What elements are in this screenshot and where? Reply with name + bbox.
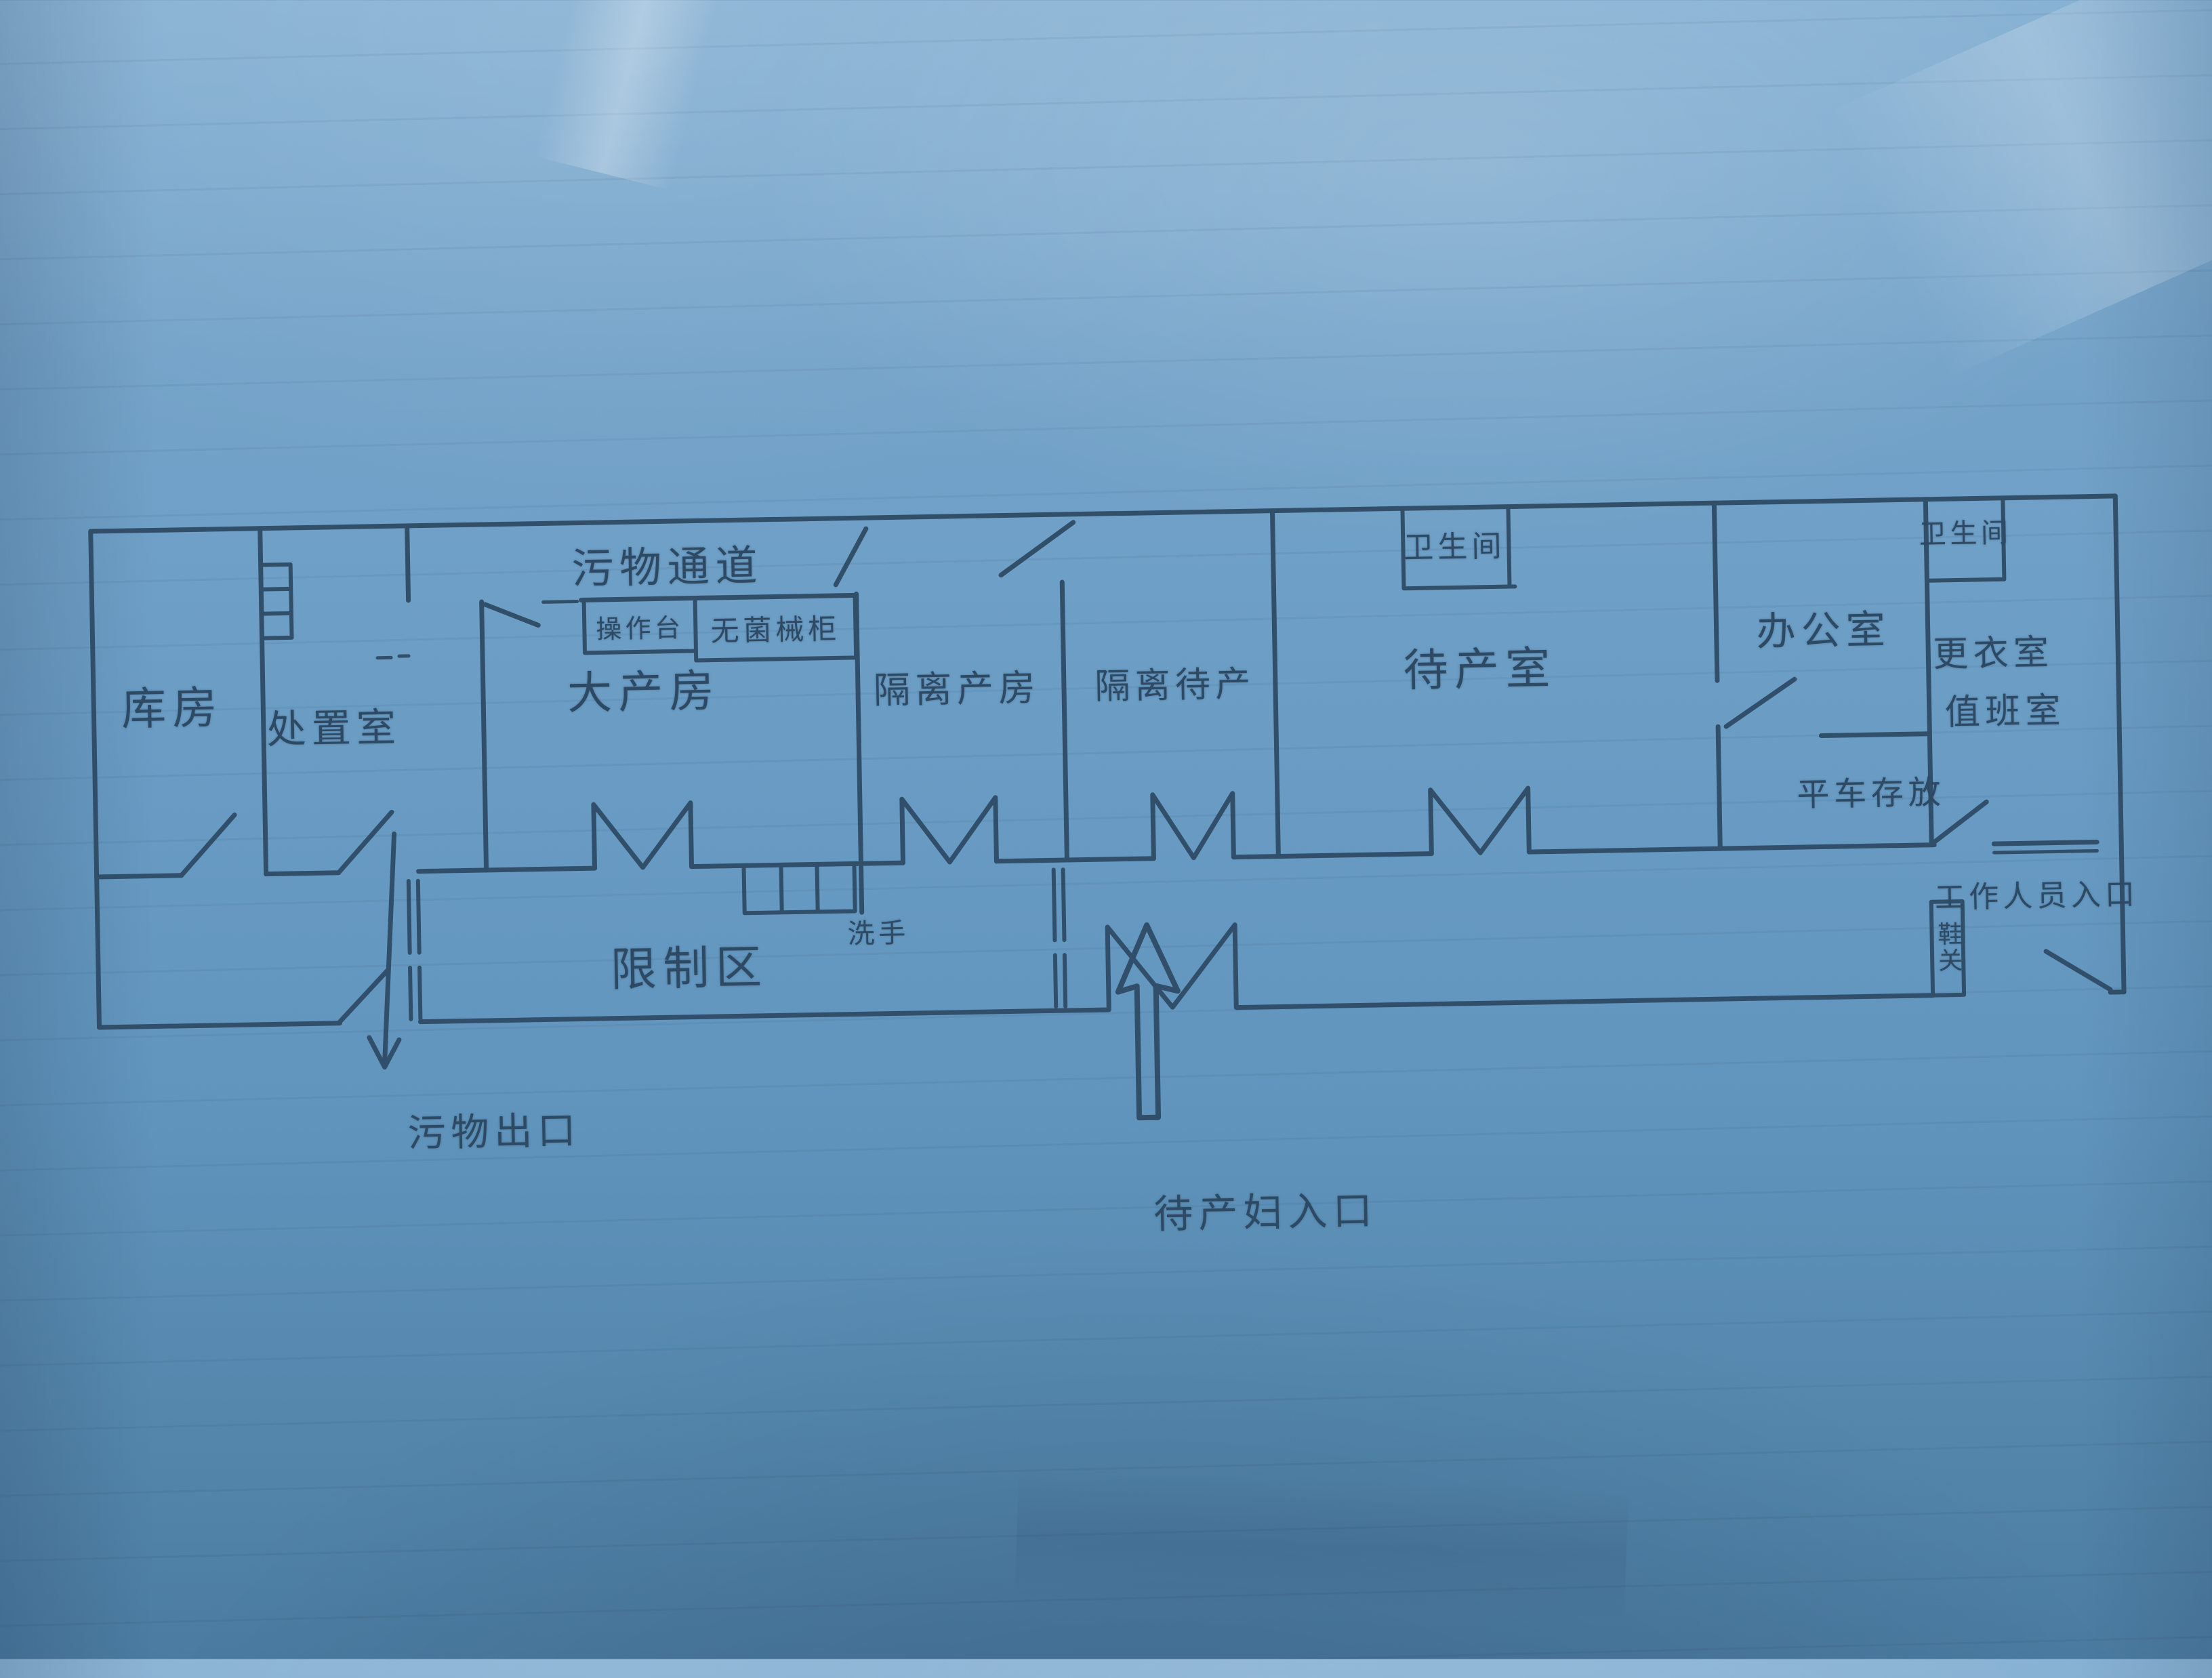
double-door-isolation-delivery <box>902 798 997 863</box>
delivery-top-door-leaf <box>485 604 539 626</box>
label-office: 办公室 <box>1756 598 1891 657</box>
label-sterile-cabinet: 无菌械柜 <box>710 606 841 649</box>
label-restricted-zone: 限制区 <box>610 929 769 999</box>
sink-icon <box>743 863 855 913</box>
waste-exit-arrow <box>366 834 400 1067</box>
label-waste-exit: 污物出口 <box>407 1100 581 1158</box>
staff-entrance-door-leaf <box>2046 950 2110 991</box>
entry-vestibule-stubs <box>1054 869 1066 1006</box>
waste-vestibule-stubs <box>409 881 421 1019</box>
label-cart-storage: 平车存放 <box>1797 765 1946 815</box>
photo-of-paper-floor-plan: { "image": { "description": "Hand-drawn … <box>0 0 2212 1659</box>
label-changing-room: 更衣室 <box>1933 623 2054 676</box>
label-labor-waiting-room: 待产室 <box>1403 632 1557 699</box>
double-door-delivery <box>594 803 692 868</box>
floor-plan-linework <box>0 0 2212 1678</box>
label-duty-room: 值班室 <box>1944 682 2066 735</box>
storage-door-leaf <box>180 815 236 875</box>
label-staff-entrance: 工作人员入口 <box>1934 869 2139 916</box>
label-toilet-right: 卫生间 <box>1919 511 2012 552</box>
double-door-labor-waiting <box>1431 788 1530 853</box>
label-main-delivery-room: 大产房 <box>567 655 720 722</box>
label-waste-corridor: 污物通道 <box>571 531 764 596</box>
isolation-top-door-leaf <box>1000 523 1074 575</box>
corridor-wall <box>97 842 2097 886</box>
label-isolation-delivery: 隔离产房 <box>873 657 1041 714</box>
label-disposal-room: 处置室 <box>266 695 402 754</box>
double-door-isolation-waiting <box>1153 794 1234 859</box>
floor-plan-drawing: 库房处置室污物通道操作台无菌械柜大产房隔离产房隔离待产卫生间待产室办公室平车存放… <box>0 0 2212 1678</box>
label-hand-washing: 洗手 <box>847 911 909 951</box>
label-toilet-left: 卫生间 <box>1404 522 1507 567</box>
label-mother-entrance: 待产妇入口 <box>1153 1179 1378 1240</box>
waste-exit-door-leaf <box>339 969 389 1021</box>
shelf-rack-icon <box>262 565 292 638</box>
door-leaves <box>176 504 2110 1025</box>
waste-corridor-door-leaf <box>835 529 867 585</box>
label-storage-room: 库房 <box>121 672 224 739</box>
disposal-door-leaf <box>337 812 393 872</box>
office-door-leaf <box>1725 679 1795 727</box>
label-operating-counter: 操作台 <box>596 607 684 645</box>
label-shoe-barrier: 鞋关 <box>1929 921 1965 975</box>
label-isolation-waiting: 隔离待产 <box>1094 655 1256 709</box>
